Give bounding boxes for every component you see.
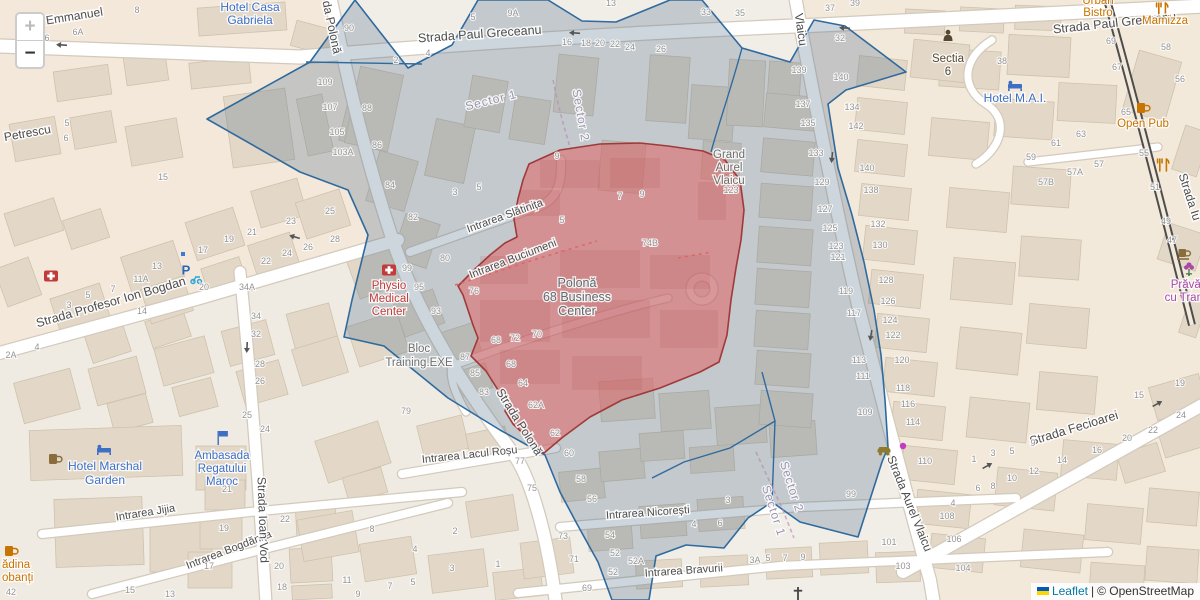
house-number: 135 — [800, 118, 815, 128]
house-number: 3 — [725, 495, 730, 505]
house-number: 5 — [470, 12, 475, 22]
house-number: 22 — [280, 514, 290, 524]
place-label-hotel-marshal-garden: Garden — [85, 473, 125, 487]
house-number: 111 — [856, 371, 870, 381]
house-number: 24 — [625, 42, 635, 52]
zoom-out-button[interactable]: − — [17, 40, 43, 67]
house-number: 73 — [558, 531, 568, 541]
house-number: 103 — [895, 561, 910, 571]
house-number: 4 — [412, 544, 417, 554]
house-number: 52 — [608, 567, 618, 577]
house-number: 25 — [242, 410, 252, 420]
house-number: 28 — [255, 359, 265, 369]
house-number: 20 — [595, 38, 605, 48]
house-number: 69 — [582, 583, 592, 593]
house-number: 83 — [479, 387, 489, 397]
house-number: 77 — [515, 456, 525, 466]
house-number: 5 — [410, 577, 415, 587]
house-number: 106 — [946, 534, 961, 544]
house-number: 12 — [1029, 466, 1039, 476]
house-number: 120 — [894, 355, 909, 365]
house-number: 22 — [261, 256, 271, 266]
building — [1007, 34, 1071, 77]
house-number: 70 — [532, 329, 542, 339]
house-number: 16 — [562, 37, 572, 47]
house-number: 105 — [329, 127, 344, 137]
poi-blue-dot — [181, 252, 185, 256]
house-number: 64 — [518, 378, 528, 388]
house-number: 109 — [857, 407, 872, 417]
zoom-control: + − — [15, 12, 45, 69]
house-number: 117 — [847, 308, 861, 318]
house-number: 13 — [606, 0, 616, 8]
house-number: 7 — [387, 581, 392, 591]
house-number: 21 — [222, 484, 232, 494]
house-number: 63 — [1076, 129, 1086, 139]
house-number: 79 — [401, 406, 411, 416]
house-number: 140 — [833, 72, 848, 82]
house-number: 58 — [576, 474, 586, 484]
physio-clinic-icon — [382, 265, 396, 276]
building-tint — [540, 160, 600, 188]
house-number: 2 — [393, 55, 398, 65]
map-canvas[interactable]: PEmmanuelStrada Paul GreceanuStrada Paul… — [0, 0, 1200, 600]
building — [125, 118, 183, 166]
house-number: 26 — [656, 44, 666, 54]
house-number: 39 — [850, 0, 860, 8]
house-number: 56 — [1175, 74, 1185, 84]
house-number: 139 — [791, 65, 806, 75]
house-number: 7 — [110, 284, 115, 294]
house-number: 65 — [1121, 107, 1131, 117]
ukraine-flag-icon — [1037, 587, 1049, 595]
house-number: 4 — [691, 519, 696, 529]
house-number: 103A — [332, 147, 353, 157]
house-number: 9 — [639, 189, 644, 199]
house-number: 121 — [830, 252, 845, 262]
house-number: 134 — [844, 102, 859, 112]
house-number: 15 — [125, 585, 135, 595]
house-number: 47 — [1167, 235, 1177, 245]
house-number: 80 — [440, 253, 450, 263]
house-number: 17 — [198, 245, 208, 255]
house-number: 122 — [885, 330, 900, 340]
house-number: 59 — [1026, 152, 1036, 162]
house-number: 4 — [34, 342, 39, 352]
building — [868, 269, 923, 308]
house-number: 107 — [322, 102, 337, 112]
house-number: 127 — [817, 204, 832, 214]
house-number: 5 — [85, 290, 90, 300]
house-number: 60 — [564, 448, 574, 458]
house-number: 123 — [723, 185, 738, 195]
house-number: 142 — [848, 121, 863, 131]
place-label-hotel-casa-gabriela: Hotel Casa — [220, 0, 280, 14]
place-label-pravalia-cu-trandafiri: Prăvăl — [1171, 279, 1200, 291]
house-number: 28 — [330, 234, 340, 244]
house-number: 137 — [795, 99, 810, 109]
house-number: 5 — [1009, 446, 1014, 456]
house-number: 23 — [286, 216, 296, 226]
building — [950, 257, 1015, 304]
house-number: 2A — [5, 350, 16, 360]
house-number: 57A — [1067, 167, 1083, 177]
house-number: 16 — [1092, 445, 1102, 455]
house-number: 49 — [1161, 216, 1171, 226]
house-number: 55 — [1139, 148, 1149, 158]
house-number: 4 — [950, 498, 955, 508]
place-label-mamizza: Mamizza — [1142, 15, 1189, 27]
house-number: 4 — [425, 48, 430, 58]
house-number: 6 — [44, 33, 49, 43]
building-tint — [698, 182, 726, 220]
place-label-gradina: obanți — [2, 572, 33, 584]
house-number: 62 — [550, 428, 560, 438]
house-number: 90 — [344, 23, 354, 33]
house-number: 8 — [134, 5, 139, 15]
house-number: 69 — [1106, 36, 1116, 46]
place-label-polona-68-business-center: Center — [558, 304, 596, 318]
house-number: 57 — [1094, 159, 1104, 169]
house-number: 24 — [260, 424, 270, 434]
house-number: 88 — [362, 103, 372, 113]
house-number: 51 — [1150, 182, 1160, 192]
building-tint — [610, 158, 660, 188]
house-number: 52A — [628, 556, 644, 566]
house-number: 3A — [749, 555, 760, 565]
house-number: 130 — [872, 240, 887, 250]
place-label-physio-medical-center: Medical — [369, 293, 409, 305]
house-number: 110 — [918, 456, 932, 466]
building — [292, 584, 333, 600]
building — [465, 494, 518, 537]
house-number: 37 — [825, 3, 835, 13]
house-number: 32 — [835, 33, 845, 43]
house-number: 17 — [204, 561, 214, 571]
house-number: 75 — [527, 483, 537, 493]
house-number: 72 — [510, 333, 520, 343]
house-number: 52 — [610, 548, 620, 558]
map-viewport[interactable]: PEmmanuelStrada Paul GreceanuStrada Paul… — [0, 0, 1200, 600]
house-number: 119 — [839, 286, 853, 296]
house-number: 132 — [870, 219, 885, 229]
house-number: 19 — [224, 234, 234, 244]
house-number: 123 — [828, 241, 843, 251]
house-number: 5 — [559, 215, 564, 225]
house-number: 129 — [814, 177, 829, 187]
house-number: 67 — [1112, 62, 1122, 72]
house-number: 18 — [581, 38, 591, 48]
house-number: 84 — [385, 180, 395, 190]
building — [862, 225, 917, 264]
house-number: 5 — [64, 118, 69, 128]
house-number: 9 — [800, 552, 805, 562]
building — [1057, 83, 1117, 124]
house-number: 11A — [133, 274, 148, 284]
house-number: 3 — [66, 300, 71, 310]
place-label-bloc-training-exe: Training.EXE — [385, 357, 453, 369]
clinic-icon — [44, 271, 58, 282]
house-number: 93 — [431, 306, 441, 316]
house-number: 1 — [495, 559, 500, 569]
house-number: 22 — [610, 39, 620, 49]
house-number: 25 — [325, 206, 335, 216]
osm-link[interactable]: © OpenStreetMap — [1097, 584, 1194, 598]
house-number: 18 — [277, 582, 287, 592]
house-number: 34A — [239, 282, 255, 292]
house-number: 14 — [1057, 455, 1067, 465]
building — [1085, 504, 1144, 545]
house-number: 68 — [491, 335, 501, 345]
house-number: 85 — [470, 368, 480, 378]
house-number: 20 — [199, 282, 209, 292]
house-number: 86 — [372, 140, 382, 150]
house-number: 118 — [896, 383, 910, 393]
house-number: 74B — [642, 238, 658, 248]
house-number: 82 — [408, 212, 418, 222]
house-number: 19 — [1175, 378, 1185, 388]
place-label-physio-medical-center: Physio — [372, 280, 407, 292]
house-number: 9 — [1030, 438, 1035, 448]
house-number: 14 — [137, 306, 147, 316]
place-label-sectia-6: 6 — [945, 66, 951, 78]
house-number: 6 — [717, 518, 722, 528]
house-number: 7 — [782, 553, 787, 563]
house-number: 62A — [528, 400, 544, 410]
house-number: 8 — [990, 481, 995, 491]
building — [946, 187, 1009, 232]
house-number: 128 — [878, 275, 893, 285]
building — [1026, 303, 1089, 348]
house-number: 113 — [852, 355, 866, 365]
house-number: 22 — [1148, 425, 1158, 435]
house-number: 3 — [449, 563, 454, 573]
house-number: 68 — [506, 359, 516, 369]
house-number: 15 — [158, 172, 168, 182]
building-tint — [572, 356, 642, 390]
house-number: 5 — [476, 182, 481, 192]
house-number: 13 — [152, 261, 162, 271]
place-label-polona-68-business-center: 68 Business — [543, 290, 611, 304]
place-label-hotel-casa-gabriela: Gabriela — [227, 13, 273, 27]
house-number: 58 — [1161, 42, 1171, 52]
house-number: 140 — [859, 163, 874, 173]
house-number: 6A — [72, 27, 83, 37]
place-label-sectia-6: Sectia — [932, 53, 965, 65]
house-number: 9A — [507, 8, 518, 18]
house-number: 20 — [1122, 433, 1132, 443]
place-label-grand-aurel-vlaicu: Aurel — [716, 162, 743, 174]
house-number: 8 — [369, 524, 374, 534]
house-number: 57B — [1038, 177, 1054, 187]
building — [928, 118, 989, 161]
zoom-in-button[interactable]: + — [17, 14, 43, 40]
house-number: 26 — [303, 242, 313, 252]
place-label-urban-bistro: Bistro — [1083, 7, 1112, 19]
house-number: 109 — [317, 77, 332, 87]
place-label-hotel-marshal-garden: Hotel Marshal — [68, 459, 142, 473]
building — [359, 536, 416, 582]
building — [966, 397, 1030, 443]
place-label-bloc-training-exe: Bloc — [408, 343, 431, 355]
house-number: 126 — [880, 296, 895, 306]
place-label-gradina: ădina — [2, 559, 31, 571]
house-number: 24 — [1176, 410, 1186, 420]
house-number: 3 — [452, 187, 457, 197]
house-number: 21 — [247, 227, 257, 237]
house-number: 11 — [342, 575, 351, 585]
attribution-separator: | — [1091, 584, 1094, 598]
house-number: 1 — [971, 454, 976, 464]
building — [1145, 546, 1199, 584]
house-number: 6 — [63, 133, 68, 143]
house-number: 15 — [1134, 390, 1144, 400]
place-label-physio-medical-center: Center — [372, 306, 407, 318]
place-label-urban-bistro: Urban — [1082, 0, 1113, 7]
house-number: 10 — [1007, 473, 1017, 483]
place-label-open-pub: Open Pub — [1117, 118, 1169, 130]
house-number: 99 — [402, 263, 412, 273]
house-number: 76 — [469, 286, 479, 296]
house-number: 71 — [569, 554, 579, 564]
house-number: 26 — [255, 376, 265, 386]
house-number: 19 — [219, 523, 229, 533]
poi-magenta-dot — [900, 443, 906, 449]
building — [428, 549, 488, 594]
house-number: 38 — [997, 56, 1007, 66]
house-number: 101 — [881, 537, 896, 547]
house-number: 95 — [414, 282, 424, 292]
building — [956, 327, 1022, 375]
house-number: 6 — [975, 483, 980, 493]
attribution-bar: Leaflet|© OpenStreetMap — [1031, 583, 1200, 600]
house-number: 7 — [617, 191, 622, 201]
house-number: 104 — [955, 563, 970, 573]
house-number: 99 — [846, 489, 856, 499]
house-number: 42 — [6, 587, 16, 597]
house-number: 9 — [355, 589, 360, 599]
house-number: 35 — [735, 8, 745, 18]
house-number: 61 — [1051, 138, 1061, 148]
building-tint — [650, 255, 710, 289]
place-label-ambasada-regatului-maroc: Regatului — [198, 463, 247, 475]
building-tint — [660, 310, 718, 348]
place-label-pravalia-cu-trandafiri: cu Trand — [1165, 292, 1200, 304]
house-number: 34 — [251, 311, 261, 321]
house-number: 56 — [587, 494, 597, 504]
building — [1019, 236, 1082, 280]
house-number: 114 — [906, 417, 920, 427]
house-number: 9 — [554, 151, 559, 161]
house-number: 33 — [701, 7, 711, 17]
house-number: 20 — [274, 561, 284, 571]
house-number: 5 — [765, 553, 770, 563]
house-number: 125 — [822, 223, 837, 233]
house-number: 116 — [901, 399, 915, 409]
leaflet-link[interactable]: Leaflet — [1052, 584, 1088, 598]
place-label-hotel-mai: Hotel M.A.I. — [984, 91, 1047, 105]
house-number: 138 — [863, 185, 878, 195]
house-number: 24 — [282, 248, 292, 258]
building — [1147, 488, 1200, 526]
building — [1036, 372, 1097, 415]
building — [70, 111, 117, 150]
house-number: 133 — [808, 148, 823, 158]
house-number: 124 — [882, 315, 897, 325]
house-number: 13 — [165, 589, 175, 599]
building — [1011, 166, 1072, 208]
place-label-grand-aurel-vlaicu: Grand — [713, 149, 745, 161]
place-label-polona-68-business-center: Polonă — [558, 276, 597, 290]
house-number: 32 — [251, 329, 261, 339]
house-number: 108 — [939, 511, 954, 521]
house-number: 2 — [452, 526, 457, 536]
place-label-ambasada-regatului-maroc: Ambasada — [195, 450, 251, 462]
house-number: 3 — [990, 448, 995, 458]
house-number: 54 — [605, 530, 615, 540]
house-number: 87 — [460, 352, 470, 362]
